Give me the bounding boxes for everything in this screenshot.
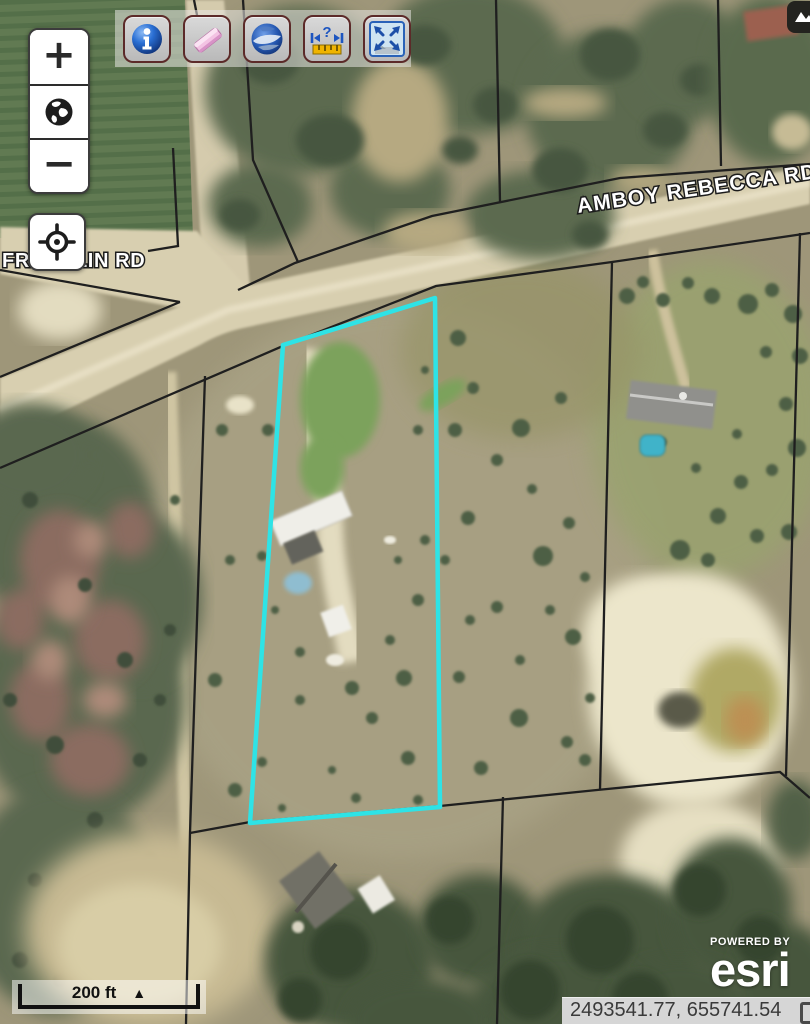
locate-button[interactable] bbox=[28, 213, 86, 271]
globe-home-button[interactable] bbox=[30, 84, 88, 138]
eraser-icon bbox=[188, 20, 226, 58]
coordinate-bar: 2493541.77, 655741.54 bbox=[562, 997, 810, 1024]
zoom-control: + − bbox=[28, 28, 90, 194]
erase-button[interactable] bbox=[183, 15, 231, 63]
full-extent-button[interactable] bbox=[363, 15, 411, 63]
locate-icon bbox=[37, 222, 77, 262]
zoom-in-button[interactable]: + bbox=[30, 30, 88, 84]
coordinate-readout: 2493541.77, 655741.54 bbox=[562, 999, 781, 1022]
coordinate-units-icon[interactable] bbox=[800, 1002, 810, 1024]
identify-button[interactable] bbox=[123, 15, 171, 63]
minus-icon: − bbox=[42, 144, 76, 184]
scale-bar-label: 200 ft bbox=[72, 983, 116, 1003]
measure-icon: ? bbox=[308, 20, 346, 58]
scale-bar-triangle-icon[interactable]: ▲ bbox=[132, 986, 146, 1000]
globe-icon bbox=[42, 95, 76, 129]
google-earth-icon bbox=[248, 20, 286, 58]
full-extent-icon bbox=[368, 20, 406, 58]
plus-icon: + bbox=[42, 35, 76, 75]
scale-bar[interactable]: 200 ft ▲ bbox=[12, 980, 206, 1014]
attribution: POWERED BY esri bbox=[710, 936, 810, 993]
measure-button[interactable]: ? bbox=[303, 15, 351, 63]
svg-text:?: ? bbox=[322, 24, 331, 41]
identify-icon bbox=[129, 21, 165, 57]
esri-logo: esri bbox=[710, 948, 810, 993]
corner-button[interactable] bbox=[787, 1, 810, 33]
map-toolbar: ? bbox=[115, 10, 411, 67]
zoom-out-button[interactable]: − bbox=[30, 138, 88, 192]
map-viewport[interactable]: AMBOY REBECCA RD FRANKLIN RD + − bbox=[0, 0, 810, 1024]
map-canvas[interactable]: AMBOY REBECCA RD FRANKLIN RD bbox=[0, 0, 810, 1024]
corner-icon bbox=[793, 8, 810, 26]
google-earth-button[interactable] bbox=[243, 15, 291, 63]
